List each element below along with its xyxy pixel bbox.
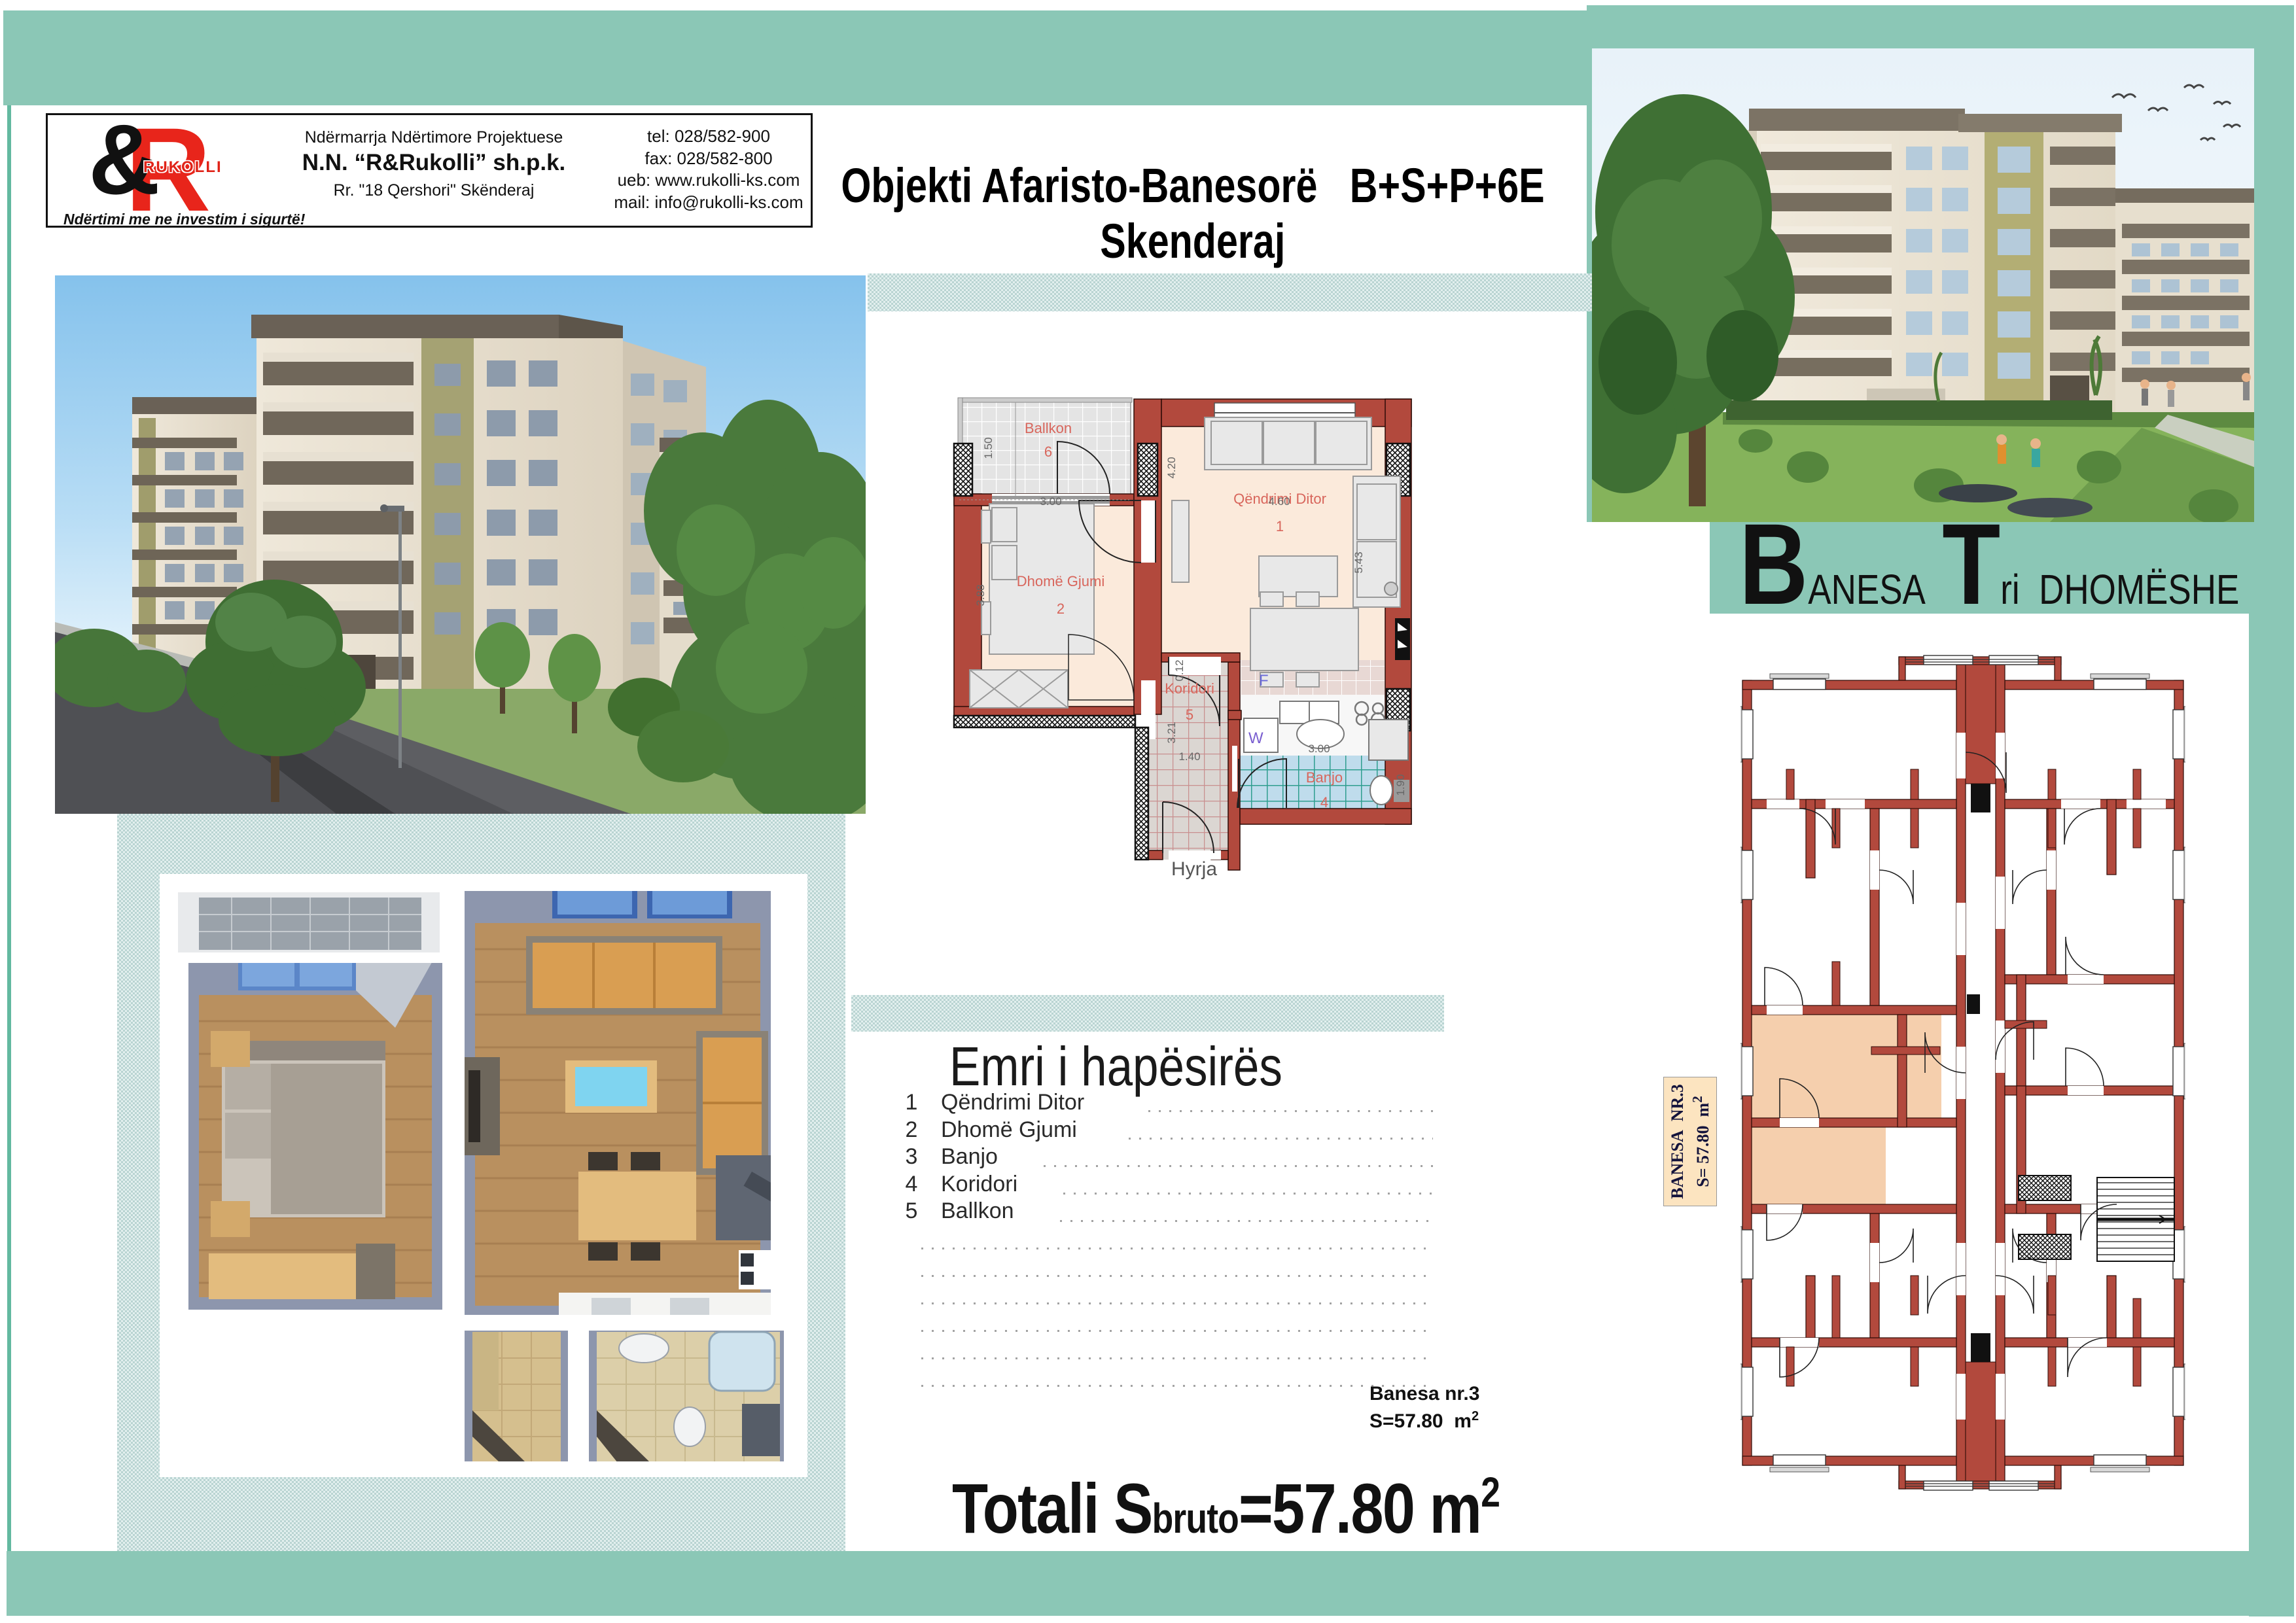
svg-text:Dhomë Gjumi: Dhomë Gjumi — [1017, 573, 1104, 589]
svg-text:W: W — [1248, 729, 1263, 747]
svg-text:4.60: 4.60 — [1268, 495, 1290, 508]
svg-text:3.00: 3.00 — [1308, 742, 1330, 755]
svg-text:4: 4 — [1320, 794, 1328, 811]
svg-text:Banjo: Banjo — [1306, 769, 1343, 786]
svg-text:3.21: 3.21 — [1165, 722, 1178, 743]
svg-text:Ballkon: Ballkon — [1025, 420, 1072, 436]
svg-text:F: F — [1259, 672, 1269, 689]
svg-text:1.40: 1.40 — [1178, 750, 1200, 763]
svg-text:0.12: 0.12 — [1173, 659, 1186, 681]
svg-text:3.00: 3.00 — [1040, 495, 1061, 508]
svg-text:5: 5 — [1186, 707, 1193, 723]
svg-text:3.88: 3.88 — [974, 584, 987, 606]
svg-text:1.50: 1.50 — [982, 437, 995, 459]
svg-text:2: 2 — [1057, 601, 1065, 617]
svg-text:Koridori: Koridori — [1165, 680, 1214, 697]
svg-text:4.20: 4.20 — [1165, 457, 1178, 478]
svg-text:1.90: 1.90 — [1394, 774, 1407, 795]
svg-text:6: 6 — [1044, 444, 1052, 460]
svg-text:5.43: 5.43 — [1352, 551, 1365, 573]
svg-text:1: 1 — [1276, 518, 1284, 534]
